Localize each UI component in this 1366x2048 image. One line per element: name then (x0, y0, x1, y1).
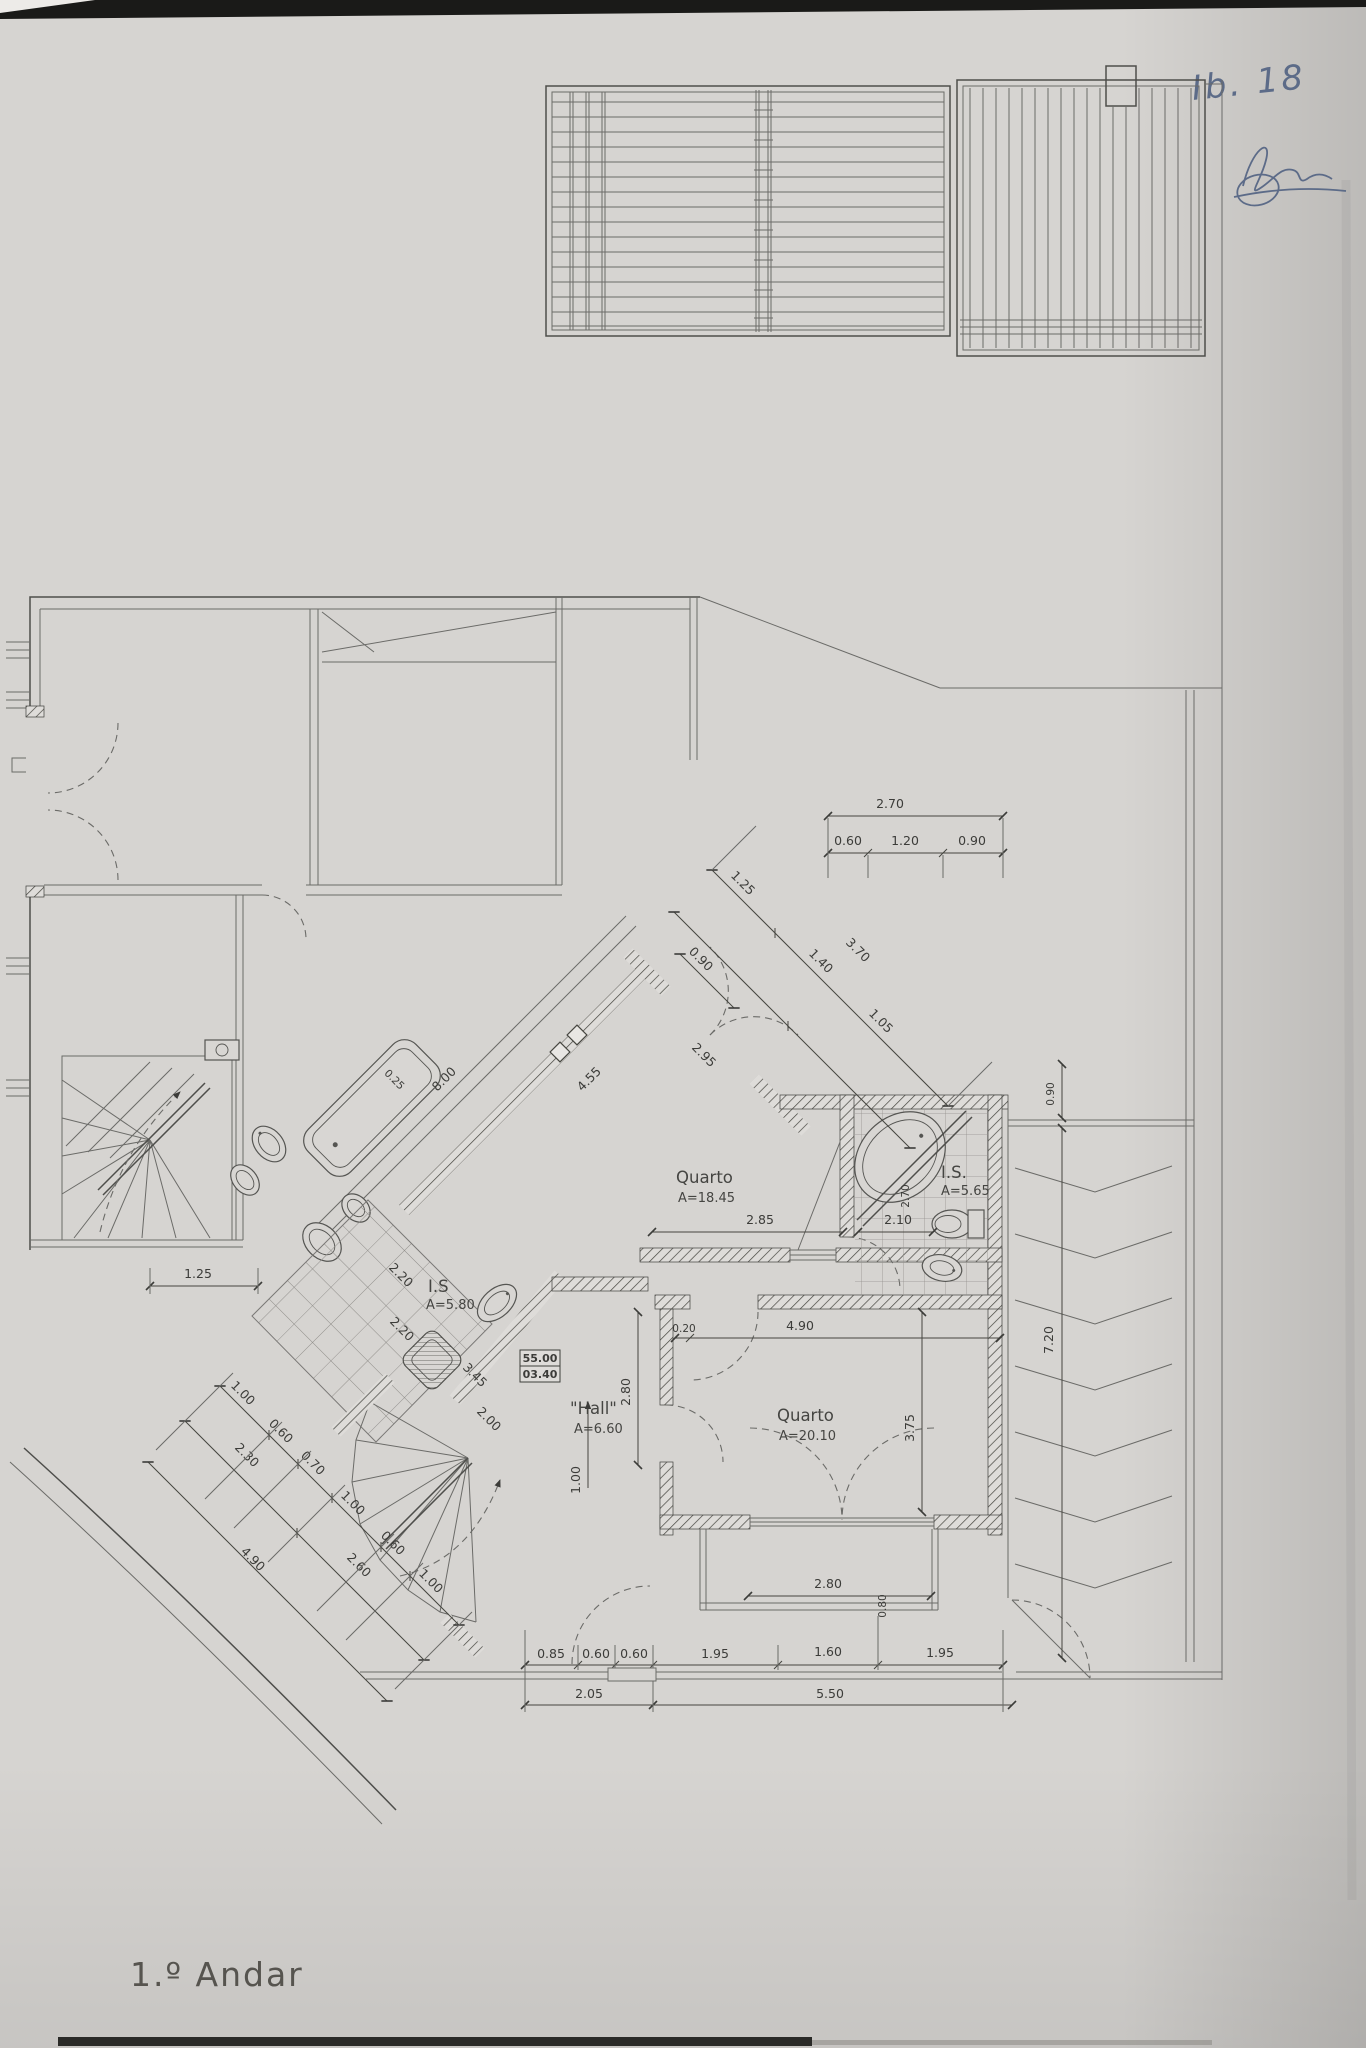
dim-quarto2-490: 4.90 (786, 1318, 814, 1333)
quarto2-area: A=20.10 (779, 1429, 836, 1444)
dim-bottom-550: 5.50 (816, 1686, 844, 1701)
level-marker: 55.00 03.40 (520, 1350, 560, 1382)
dim-balcony-080: 0.80 (877, 1594, 889, 1617)
quarto1-area: A=18.45 (678, 1191, 735, 1206)
dim-bottom-195a: 1.95 (701, 1646, 729, 1661)
is2-area: A=5.80 (426, 1298, 475, 1313)
dim-hall-100: 1.00 (568, 1466, 583, 1494)
dim-is1-270: 2.70 (900, 1184, 912, 1207)
is2-name: I.S (428, 1277, 449, 1296)
paper-background (0, 0, 1366, 2048)
is1-name: I.S. (941, 1163, 967, 1182)
level-lower: 03.40 (523, 1368, 558, 1381)
dim-top-seg3: 0.90 (958, 833, 986, 848)
quarto1-name: Quarto (676, 1168, 733, 1187)
dim-top-seg2: 1.20 (891, 833, 919, 848)
dim-ramp-090: 0.90 (1045, 1082, 1057, 1105)
dim-hall-280: 2.80 (618, 1378, 633, 1406)
dim-bottom-195b: 1.95 (926, 1645, 954, 1660)
scan-bottom-edge (58, 2037, 812, 2046)
hall-name: "Hall" (570, 1399, 617, 1418)
dim-bottom-085: 0.85 (537, 1646, 565, 1661)
dim-quarto2-375: 3.75 (902, 1414, 917, 1442)
toilet (932, 1210, 984, 1238)
washbasin (205, 1040, 239, 1060)
dim-top-seg1: 0.60 (834, 833, 862, 848)
floor-title: 1.º Andar (130, 1955, 304, 1994)
dim-bottom-060b: 0.60 (620, 1646, 648, 1661)
is1-area: A=5.65 (941, 1184, 990, 1199)
level-upper: 55.00 (523, 1352, 558, 1365)
hall-area: A=6.60 (574, 1422, 623, 1437)
dim-balcony-280: 2.80 (814, 1576, 842, 1591)
dim-bottom-160: 1.60 (814, 1644, 842, 1659)
floor-plan-drawing: Ib. 18 (0, 0, 1366, 2048)
dim-is1-210: 2.10 (884, 1212, 912, 1227)
quarto2-name: Quarto (777, 1406, 834, 1425)
dim-left-125: 1.25 (184, 1266, 212, 1281)
dim-gap-020: 0.20 (672, 1323, 695, 1335)
dim-bottom-205: 2.05 (575, 1686, 603, 1701)
dim-bottom-060a: 0.60 (582, 1646, 610, 1661)
dim-top-total: 2.70 (876, 796, 904, 811)
dim-quarto1-285: 2.85 (746, 1212, 774, 1227)
scanned-floor-plan: Ib. 18 (0, 0, 1366, 2048)
dim-ramp-720: 7.20 (1041, 1326, 1056, 1354)
